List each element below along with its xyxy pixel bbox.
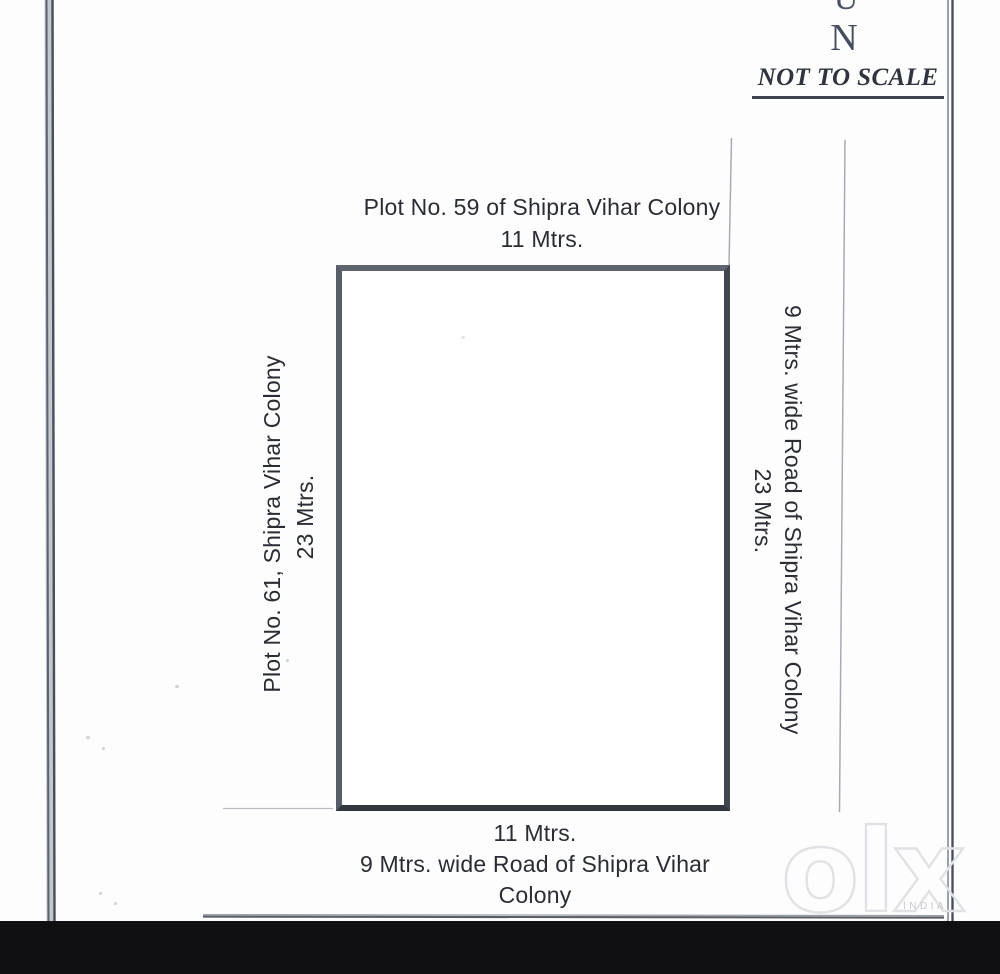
watermark-layer: olx <box>0 0 1000 974</box>
olx-country-label: INDIA <box>903 901 947 913</box>
footer-black-band <box>0 921 1000 974</box>
olx-logo-icon: olx <box>781 805 964 938</box>
scanned-site-plan: U N NOT TO SCALE Plot No. 59 of Shipra V… <box>0 0 1000 974</box>
